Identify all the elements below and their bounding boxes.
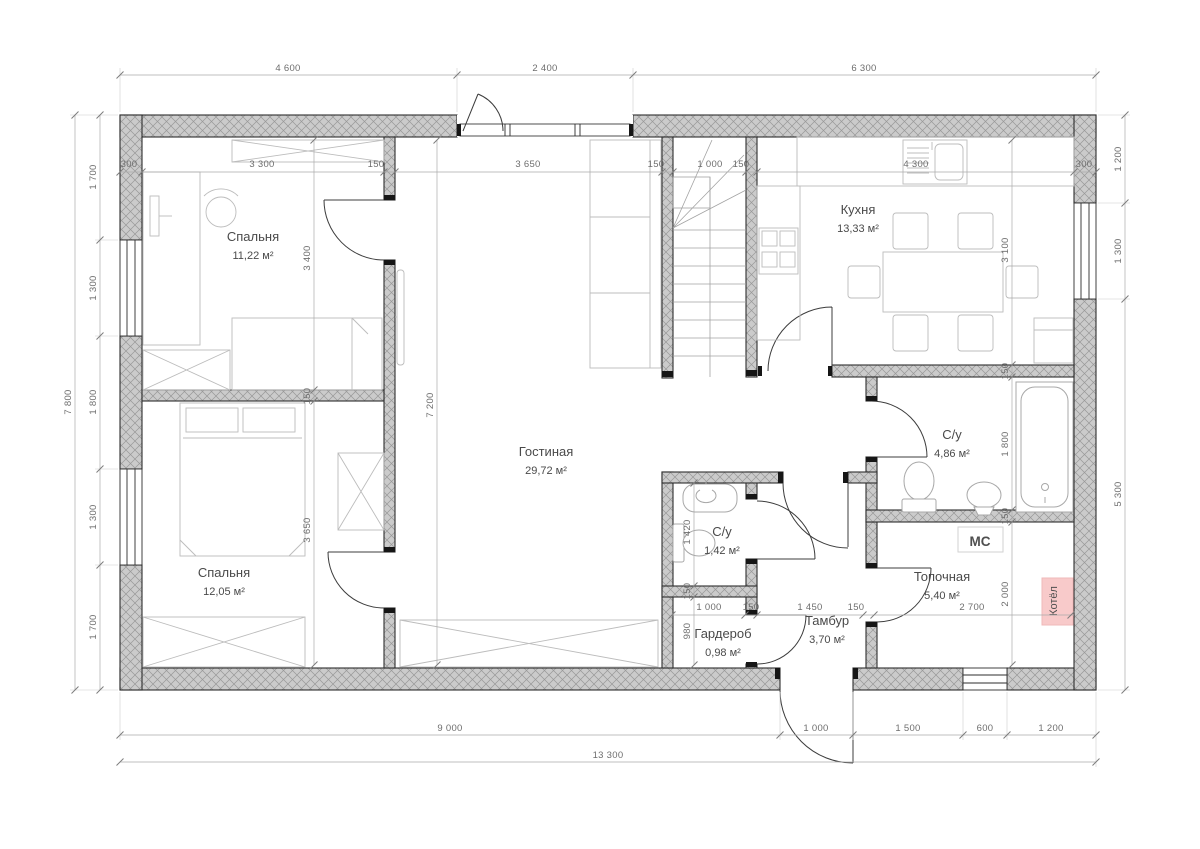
dim-bottom-3: 600 [977,723,994,734]
window-bottom-boiler [963,668,1007,690]
partition-bedrooms-living-c [384,608,395,668]
dimension-labels: 4 600 2 400 6 300 300 3 300 150 3 650 15… [63,63,1124,761]
floor-plan-page: МС Котёл 4 600 2 400 6 300 300 3 300 150… [0,0,1200,849]
dim-bottom-overall: 13 300 [593,750,624,761]
dim-bedroom1-depth: 3 400 [302,245,313,270]
dim-kitchen-wall: 150 [1000,363,1011,380]
dim-inner-2: 150 [368,159,385,170]
room-area-kitchen: 13,33 м² [837,223,879,235]
living-tv [395,270,404,365]
room-area-wardrobe: 0,98 м² [705,647,741,659]
wall-right-2 [1074,299,1096,690]
dim-bath-depth: 1 800 [1000,431,1011,456]
dim-kitchen-depth: 3 100 [1000,237,1011,262]
dim-wc-height: 1 420 [682,519,693,544]
dim-tambour-width: 1 450 [797,602,822,613]
bathroom-door [871,401,927,457]
wc-top-wall [662,472,783,483]
room-label-kitchen: Кухня [841,202,876,217]
dim-inner-5: 1 000 [697,159,722,170]
tambour-inner-door [783,483,848,548]
window-right-kitchen [1074,203,1096,299]
dim-bath-wall: 150 [1000,508,1011,525]
dim-wardrobe-height: 980 [682,623,693,640]
dim-bottom-1: 1 000 [803,723,828,734]
dim-bottom-4: 1 200 [1038,723,1063,734]
window-left-top [120,240,142,336]
hall-wall-b [848,472,877,483]
bedroom1-cabinet [143,350,230,390]
dim-right-1: 1 300 [1113,238,1124,263]
wall-left-1 [120,115,142,240]
exterior-walls [120,115,1096,690]
dim-bottom-0: 9 000 [437,723,462,734]
dim-top-1: 2 400 [532,63,557,74]
terrace-door [457,94,633,137]
room-area-boiler-room: 5,40 м² [924,590,960,602]
partition-bedrooms-living-b [384,260,395,552]
mc-unit: МС [958,527,1003,552]
kitchen-counter-top [797,137,1074,186]
dim-wardrobe-width: 1 000 [696,602,721,613]
kitchen-counter-left [757,186,800,340]
wall-bottom-left [120,668,780,690]
dim-left-overall: 7 800 [63,389,74,414]
wall-bottom-mid [853,668,963,690]
furniture [143,137,1074,667]
room-area-wc: 1,42 м² [704,545,740,557]
dim-top-2: 6 300 [851,63,876,74]
floor-plan-drawing: МС Котёл 4 600 2 400 6 300 300 3 300 150… [0,0,1200,849]
dim-boiler-width: 2 700 [959,602,984,613]
room-area-tambour: 3,70 м² [809,634,845,646]
dim-inner-0: 300 [121,159,138,170]
room-area-bedroom1: 11,22 м² [233,250,274,262]
room-area-bedroom2: 12,05 м² [203,586,245,598]
wall-top-left [120,115,457,137]
room-label-living: Гостиная [519,444,574,459]
dim-inner-3: 3 650 [515,159,540,170]
boiler-label: Котёл [1048,586,1060,616]
bedroom2-bed [180,403,305,556]
room-label-tambour: Тамбур [805,613,849,628]
bedroom2-cabinet [338,453,384,530]
wall-left-3 [120,565,142,690]
bathroom-toilet [902,462,936,512]
wall-left-2 [120,336,142,469]
kitchen-table [883,252,1003,312]
wc-wardrobe-divider [662,586,757,597]
dim-inner-4: 150 [648,159,665,170]
dim-inner-8: 300 [1076,159,1093,170]
dim-boiler-depth: 2 000 [1000,581,1011,606]
kitchen-stove [759,228,798,274]
dim-right-0: 1 200 [1113,146,1124,171]
dimension-lines [70,68,1130,767]
dim-hall-wall-1: 150 [743,602,760,613]
wall-between-bedrooms [142,390,384,401]
bedroom2-wardrobe [143,617,305,667]
dim-left-2: 1 800 [88,389,99,414]
dim-living-depth: 7 200 [425,392,436,417]
room-label-wardrobe: Гардероб [694,626,751,641]
window-left-bottom [120,469,142,565]
mc-label: МС [970,534,991,549]
staircase [673,140,746,377]
room-area-bathroom: 4,86 м² [934,448,970,460]
room-area-living: 29,72 м² [525,465,567,477]
kitchen-bottom-wall [832,365,1074,377]
dim-inner-6: 150 [733,159,750,170]
living-lowboard [400,620,658,667]
dim-left-4: 1 700 [88,614,99,639]
dim-left-1: 1 300 [88,275,99,300]
wardrobe-door [757,615,806,664]
dim-left-3: 1 300 [88,504,99,529]
bathtub [1016,382,1073,512]
living-sofa [590,140,661,368]
bedroom1-chair [204,189,238,227]
dim-bottom-2: 1 500 [895,723,920,734]
dim-bedroom-wall: 150 [302,388,313,405]
room-label-bedroom2: Спальня [198,565,250,580]
bedroom1-bed [232,318,382,390]
room-label-wc: С/у [712,524,732,539]
dim-left-0: 1 700 [88,164,99,189]
wc-block-wall-left [662,472,673,668]
bedroom1-door [324,200,384,260]
room-label-boiler-room: Топочная [914,569,970,584]
wall-top-right [633,115,1096,137]
dim-inner-1: 3 300 [249,159,274,170]
bedroom1-desk [143,172,200,345]
dim-right-2: 5 300 [1113,481,1124,506]
room-label-bedroom1: Спальня [227,229,279,244]
kitchen-cabinet [1034,318,1073,363]
wc-door [757,501,815,559]
boiler-wall-left-a [866,522,877,568]
partition-bedrooms-living-a [384,137,395,200]
dim-wc-wall: 150 [682,583,693,600]
bedroom2-door [328,552,384,608]
dim-hall-wall-2: 150 [848,602,865,613]
dim-top-0: 4 600 [275,63,300,74]
boiler-wall-left-b [866,622,877,668]
dim-inner-7: 4 300 [903,159,928,170]
dim-bedroom2-depth: 3 650 [302,517,313,542]
room-label-bathroom: С/у [942,427,962,442]
